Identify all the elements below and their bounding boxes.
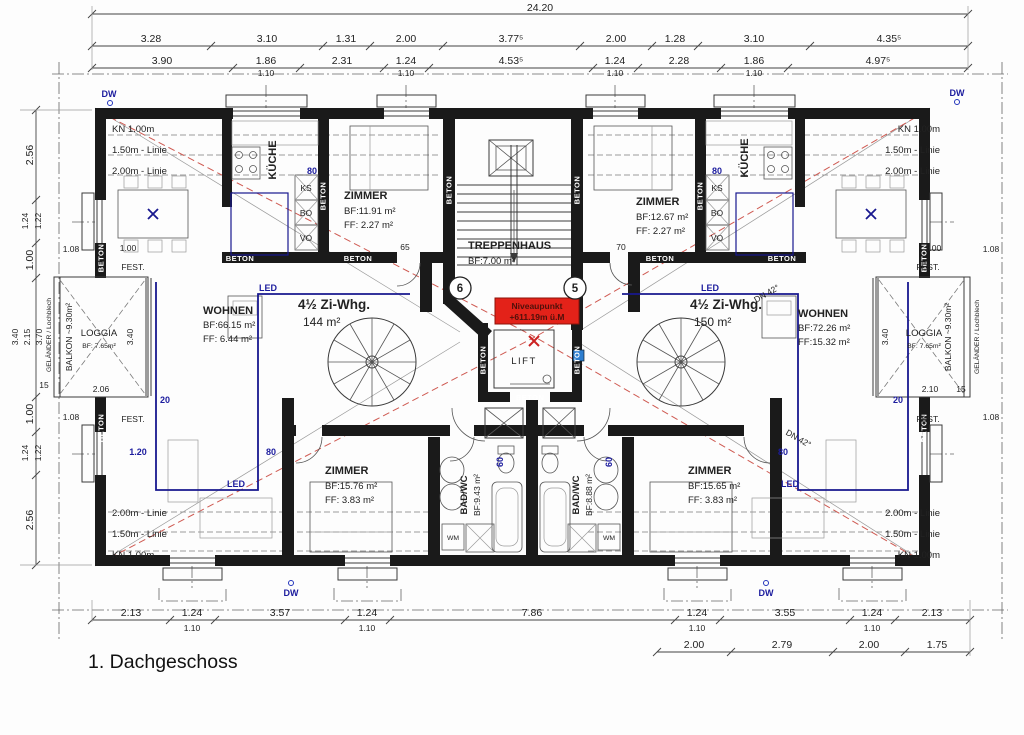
dim: 1.22 <box>33 212 43 229</box>
dim-labels-bottom: 2.13 1.24 3.57 1.24 7.86 1.24 3.55 1.24 … <box>121 607 948 651</box>
dim-axis: 1.10 <box>864 623 881 633</box>
room-zimmer-tr: ZIMMER <box>636 196 679 208</box>
line200-label: 2.00m - Linie <box>112 508 167 519</box>
dim-axis: 1.10 <box>398 68 415 78</box>
beton: BETON <box>573 176 582 205</box>
dim: 1.24 <box>687 607 708 619</box>
dim: 1.22 <box>33 444 43 461</box>
flat-area-left: 144 m² <box>303 315 340 329</box>
room-kueche-right: KÜCHE <box>738 138 751 177</box>
sill-dim: 1.00 <box>120 243 137 253</box>
blue-dim: 80 <box>778 447 788 457</box>
kn-label: KN 1.00m <box>898 124 940 135</box>
room-treppenhaus: TREPPENHAUS <box>468 240 551 252</box>
blue-dim: 80 <box>266 447 276 457</box>
dim: 1.24 <box>605 55 626 67</box>
dim-labels-top: 24.20 3.28 3.10 1.31 2.00 3.77⁵ 2.00 1.2… <box>141 2 902 78</box>
appliance-ks: KS <box>711 183 723 193</box>
lift <box>494 330 584 388</box>
loggia-area: BF: 7.65m² <box>907 343 941 350</box>
room-zimmer-tl: ZIMMER <box>344 190 387 202</box>
line200-label: 2.00m - Linie <box>112 166 167 177</box>
dim: 3.57 <box>270 607 291 619</box>
fest-label: FEST. <box>121 262 144 272</box>
line150-label: 1.50m - Linie <box>885 145 940 156</box>
line200-label: 2.00m - Linie <box>885 508 940 519</box>
dw-label: DW <box>102 89 117 99</box>
flat-name-right: 4½ Zi-Whg. <box>690 297 762 312</box>
room-kueche-left: KÜCHE <box>266 140 279 179</box>
sill-dim: 1.08 <box>63 412 80 422</box>
dim: 4.53⁵ <box>499 55 524 67</box>
room-wohnen-right: WOHNEN <box>798 308 848 320</box>
dw-label: DW <box>284 588 299 598</box>
beton: BETON <box>516 393 545 402</box>
door-dim: 65 <box>400 242 410 252</box>
beton: BETON <box>445 176 454 205</box>
beton: BETON <box>479 346 488 375</box>
balkon-label: BALKON ~9.30m² <box>64 303 74 371</box>
blue-dim: 80 <box>307 166 317 176</box>
sill-dim: 15 <box>39 380 49 390</box>
dim: 1.24 <box>182 607 203 619</box>
axis-markers: 6 5 <box>449 277 586 299</box>
dim: 1.24 <box>862 607 883 619</box>
flat-name-left: 4½ Zi-Whg. <box>298 297 370 312</box>
room-area: FF: 2.27 m² <box>344 220 393 231</box>
dim: 7.86 <box>522 607 543 619</box>
beton: BETON <box>768 254 797 263</box>
room-bad-left: BAD/WC <box>459 475 470 514</box>
kn-label: KN 1.00m <box>112 550 154 561</box>
blue-dim: 60 <box>604 457 614 467</box>
dim: 2.28 <box>669 55 690 67</box>
floorplan-canvas: 24.20 3.28 3.10 1.31 2.00 3.77⁵ 2.00 1.2… <box>0 0 1024 735</box>
room-area: FF: 2.27 m² <box>636 226 685 237</box>
line150-label: 1.50m - Linie <box>112 145 167 156</box>
dim: 1.24 <box>20 212 30 229</box>
room-bad-right: BAD/WC <box>571 475 582 514</box>
room-zimmer-br: ZIMMER <box>688 465 731 477</box>
room-area: BF:15.76 m² <box>325 481 377 492</box>
beton: BETON <box>344 254 373 263</box>
sill-dim: 2.10 <box>922 384 939 394</box>
dim: 3.10 <box>257 33 278 45</box>
appliance-vo: VO <box>300 233 313 243</box>
dim: 1.86 <box>744 55 765 67</box>
room-lift: LIFT <box>511 356 537 367</box>
dim-total: 24.20 <box>527 2 553 14</box>
dim: 2.31 <box>332 55 353 67</box>
dim: 2.00 <box>859 639 880 651</box>
room-area: BF:8.88 m² <box>584 474 594 516</box>
dim-axis: 1.10 <box>689 623 706 633</box>
dim: 3.55 <box>775 607 796 619</box>
led-label: LED <box>259 283 278 293</box>
room-area: FF: 3.83 m² <box>325 495 374 506</box>
sill-dim: 15 <box>956 384 966 394</box>
dim: 3.77⁵ <box>499 33 524 45</box>
dim-axis: 1.10 <box>607 68 624 78</box>
room-area: BF:72.26 m² <box>798 323 850 334</box>
dim: 3.28 <box>141 33 162 45</box>
floorplan-page: 24.20 3.28 3.10 1.31 2.00 3.77⁵ 2.00 1.2… <box>0 0 1024 735</box>
sill-dim: 1.08 <box>63 244 80 254</box>
dim: 3.70 <box>34 328 44 345</box>
beton: BETON <box>226 254 255 263</box>
dim: 1.24 <box>20 444 30 461</box>
fest-label: FEST. <box>916 262 939 272</box>
dim: 1.24 <box>357 607 378 619</box>
sill-dim: 1.00 <box>925 243 942 253</box>
sill-dim: 2.06 <box>93 384 110 394</box>
dim: 4.97⁵ <box>866 55 891 67</box>
appliance-wm: WM <box>447 535 459 542</box>
kn-label: KN 1.00m <box>898 550 940 561</box>
dim: 3.10 <box>744 33 765 45</box>
loggia-area: BF: 7.65m² <box>82 343 116 350</box>
fest-label: FEST. <box>916 414 939 424</box>
dim: 3.40 <box>10 328 20 345</box>
dim: 1.86 <box>256 55 277 67</box>
fest-label: FEST. <box>121 414 144 424</box>
appliance-ks: KS <box>300 183 312 193</box>
led-label: LED <box>227 479 246 489</box>
dim: 2.15 <box>22 328 32 345</box>
kn-label: KN 1.00m <box>112 124 154 135</box>
dw-label: DW <box>950 88 965 98</box>
dim: 2.56 <box>24 510 36 531</box>
beton: BETON <box>97 244 106 273</box>
niveau-line2: +611.19m ü.M <box>509 312 564 322</box>
dim: 1.28 <box>665 33 686 45</box>
dim-axis: 1.10 <box>746 68 763 78</box>
dining-table-left <box>118 176 188 252</box>
dim: 1.31 <box>336 33 357 45</box>
room-area: BF:12.67 m² <box>636 212 688 223</box>
dim: 2.00 <box>684 639 705 651</box>
balkon-label: BALKON ~9.30m² <box>943 303 953 371</box>
room-area: BF:11.91 m² <box>344 206 396 217</box>
beton: BETON <box>319 182 328 211</box>
blue-dim: 20 <box>160 395 170 405</box>
axis-number-6: 6 <box>457 283 463 295</box>
gelaender-label: GELÄNDER / Lochblech <box>973 300 981 374</box>
line150-label: 1.50m - Linie <box>112 529 167 540</box>
dim: 2.13 <box>922 607 943 619</box>
spiral-stair-left <box>328 318 416 406</box>
beton: BETON <box>696 182 705 211</box>
blue-dim: 20 <box>893 395 903 405</box>
appliance-wm: WM <box>603 535 615 542</box>
dw-label: DW <box>759 588 774 598</box>
loggia-label: LOGGIA <box>906 328 943 339</box>
dining-table-right <box>836 176 906 252</box>
dim: 1.24 <box>396 55 417 67</box>
room-wohnen-left: WOHNEN <box>203 305 253 317</box>
loggia-dim: 3.40 <box>125 328 135 345</box>
dim: 2.00 <box>606 33 627 45</box>
dim: 1.00 <box>24 250 36 271</box>
room-area: FF: 6.44 m² <box>203 334 252 345</box>
blue-dim: 1.20 <box>129 447 147 457</box>
room-zimmer-bl: ZIMMER <box>325 465 368 477</box>
dim: 2.00 <box>396 33 417 45</box>
blue-dim: 60 <box>495 457 505 467</box>
axis-number-5: 5 <box>572 283 579 295</box>
dim: 4.35⁵ <box>877 33 902 45</box>
appliance-vo: VO <box>711 233 724 243</box>
beton: BETON <box>97 414 106 443</box>
gelaender-label: GELÄNDER / Lochblech <box>45 298 53 372</box>
niveau-line1: Niveaupunkt <box>511 301 562 311</box>
led-label: LED <box>781 479 800 489</box>
dim: 1.75 <box>927 639 948 651</box>
spiral-stair-right <box>637 318 725 406</box>
sill-dim: 1.08 <box>983 412 1000 422</box>
room-area: BF:66.15 m² <box>203 320 255 331</box>
led-label: LED <box>701 283 720 293</box>
dim: 2.56 <box>24 145 36 166</box>
room-area: FF: 3.83 m² <box>688 495 737 506</box>
dim: 1.00 <box>24 404 36 425</box>
loggia-dim: 3.40 <box>880 328 890 345</box>
beton: BETON <box>646 254 675 263</box>
appliance-bo: BO <box>711 208 724 218</box>
dim-axis: 1.10 <box>359 623 376 633</box>
blue-dim: 80 <box>712 166 722 176</box>
line150-label: 1.50m - Linie <box>885 529 940 540</box>
appliance-bo: BO <box>300 208 313 218</box>
dim-axis: 1.10 <box>184 623 201 633</box>
loggia-label: LOGGIA <box>81 328 118 339</box>
dim: 2.13 <box>121 607 142 619</box>
line200-label: 2.00m - Linie <box>885 166 940 177</box>
room-area: BF:7.00 m² <box>468 256 515 267</box>
door-dim: 70 <box>616 242 626 252</box>
room-area: FF:15.32 m² <box>798 337 850 348</box>
dim: 2.79 <box>772 639 793 651</box>
dim-axis: 1.10 <box>258 68 275 78</box>
room-area: BF:9.43 m² <box>472 474 482 516</box>
sill-dim: 1.08 <box>983 244 1000 254</box>
page-title: 1. Dachgeschoss <box>88 651 238 673</box>
flat-area-right: 150 m² <box>694 315 731 329</box>
room-area: BF:15.65 m² <box>688 481 740 492</box>
dim: 3.90 <box>152 55 173 67</box>
beton: BETON <box>573 346 582 375</box>
